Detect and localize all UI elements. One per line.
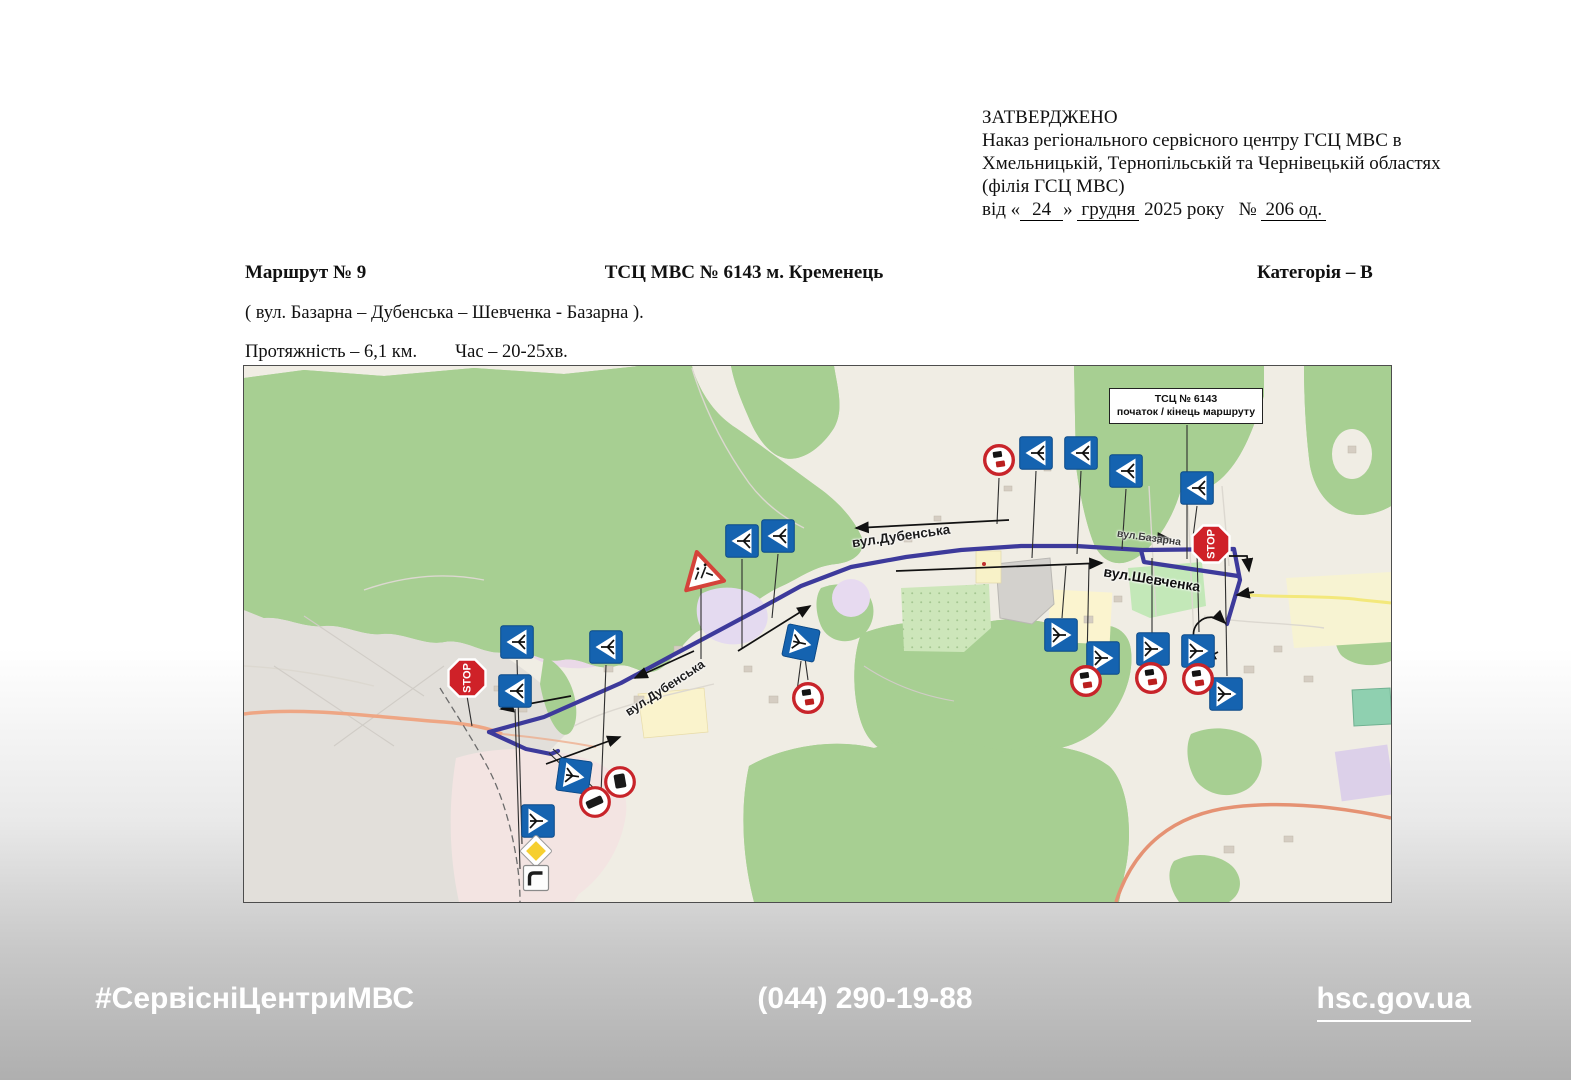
approval-month: грудня [1077,199,1139,221]
stop-sign: STOP [1191,524,1231,564]
category-label: Категорія – В [1257,262,1373,284]
junction-layout-sign [1044,618,1078,652]
approval-no-label: № [1239,199,1257,220]
approval-line: від «24» грудня 2025 року № 206 од. [982,198,1442,221]
footer-hashtag: #СервісніЦентриМВС [95,982,414,1016]
route-length-line: Протяжність – 6,1 км.Час – 20-25хв. [245,342,568,363]
junction-layout-sign [1019,436,1053,470]
route-streets-line: ( вул. Базарна – Дубенська – Шевченка - … [245,303,644,324]
junction-layout-sign [781,623,821,663]
junction-layout-sign [521,804,555,838]
warning-triangle-sign [674,543,729,595]
prohibition-sign [1069,664,1103,698]
no-vehicle-sign [578,785,612,819]
approval-line: Наказ регіонального сервісного центру ГС… [982,129,1442,152]
route-map: STOPSTOPвул.Дубенськавул.Дубенськавул.Ше… [243,365,1392,903]
time-value: Час – 20-25хв. [455,342,568,362]
street-label: вул.Дубенська [623,657,707,719]
footer-site-link[interactable]: hsc.gov.ua [1317,982,1471,1022]
tsc-callout: ТСЦ № 6143 початок / кінець маршруту [1109,388,1263,424]
junction-layout-sign [1180,471,1214,505]
length-value: Протяжність – 6,1 км. [245,342,417,362]
priority-road-sign [519,834,553,868]
prohibition-sign [791,681,825,715]
junction-layout-sign [498,674,532,708]
junction-layout-sign [761,519,795,553]
page-title: ТСЦ МВС № 6143 м. Кременець [605,262,884,284]
junction-layout-sign [500,625,534,659]
street-label: вул.Базарна [1116,528,1182,549]
junction-layout-sign [589,630,623,664]
junction-layout-sign [1109,454,1143,488]
approval-date-prefix: від « [982,199,1020,220]
signs-layer: STOPSTOPвул.Дубенськавул.Дубенськавул.Ше… [244,366,1391,902]
svg-text:STOP: STOP [1206,529,1218,559]
tsc-callout-title: ТСЦ № 6143 [1112,393,1260,406]
main-road-direction-sign [523,865,550,892]
tsc-callout-subtitle: початок / кінець маршруту [1112,406,1260,419]
approval-line: (філія ГСЦ МВС) [982,175,1442,198]
stop-sign: STOP [447,658,487,698]
prohibition-sign [1181,662,1215,696]
approval-date-close: » [1063,199,1073,220]
prohibition-sign [1134,661,1168,695]
junction-layout-sign [1064,436,1098,470]
junction-layout-sign [725,524,759,558]
street-label: вул.Дубенська [851,522,951,551]
approval-day: 24 [1020,199,1063,221]
approval-number: 206 од. [1261,199,1326,221]
approval-year: 2025 року [1144,199,1224,220]
approval-line: ЗАТВЕРДЖЕНО [982,106,1442,129]
approval-line: Хмельницькій, Тернопільській та Чернівец… [982,152,1442,175]
footer-phone: (044) 290-19-88 [757,982,972,1016]
approval-block: ЗАТВЕРДЖЕНО Наказ регіонального сервісно… [982,106,1442,221]
svg-text:STOP: STOP [462,663,474,693]
street-label: вул.Шевченка [1102,563,1201,594]
prohibition-sign [982,443,1016,477]
route-number-title: Маршрут № 9 [245,262,366,284]
